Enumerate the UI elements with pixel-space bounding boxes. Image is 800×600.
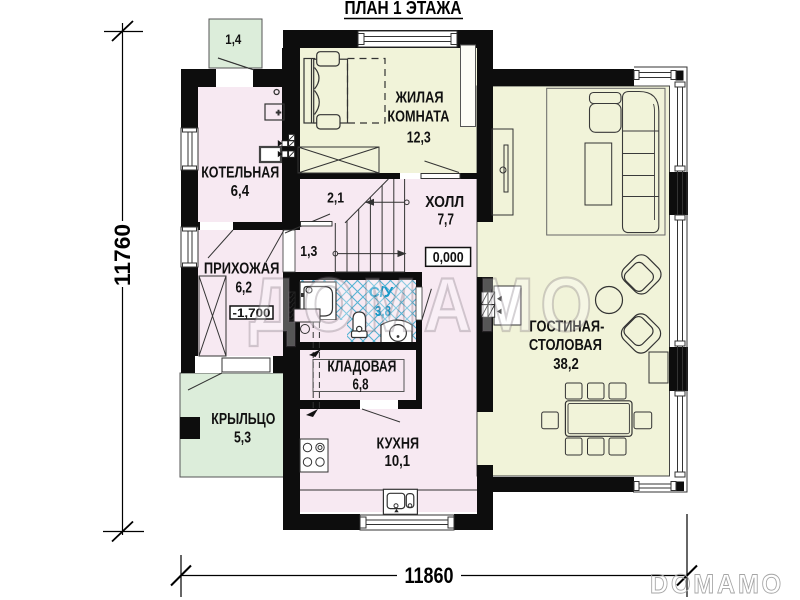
svg-text:6,8: 6,8 [353,377,369,394]
svg-text:6,4: 6,4 [231,183,250,200]
svg-text:2,1: 2,1 [327,190,344,207]
svg-text:7,7: 7,7 [437,212,454,229]
svg-text:DOMAMO: DOMAMO [650,569,784,599]
svg-text:ХОЛЛ: ХОЛЛ [425,194,464,211]
svg-text:5,3: 5,3 [234,430,251,447]
svg-text:11760: 11760 [110,224,135,286]
svg-text:11860: 11860 [405,563,454,588]
svg-text:КЛАДОВАЯ: КЛАДОВАЯ [327,359,396,376]
svg-text:1,4: 1,4 [225,31,241,47]
svg-text:+: + [276,108,281,118]
svg-text:12,3: 12,3 [407,129,431,146]
svg-text:КОМНАТА: КОМНАТА [387,108,449,125]
svg-text:38,2: 38,2 [553,356,579,373]
svg-text:КРЫЛЬЦО: КРЫЛЬЦО [211,411,275,428]
svg-text:ДОМАМО: ДОМАМО [249,263,599,348]
svg-text:10,1: 10,1 [385,453,411,470]
svg-text:ЖИЛАЯ: ЖИЛАЯ [395,90,444,107]
svg-text:КУХНЯ: КУХНЯ [377,436,420,453]
svg-text:1,3: 1,3 [300,243,317,260]
svg-text:КОТЕЛЬНАЯ: КОТЕЛЬНАЯ [201,164,279,181]
svg-text:ПЛАН 1 ЭТАЖА: ПЛАН 1 ЭТАЖА [345,0,462,18]
